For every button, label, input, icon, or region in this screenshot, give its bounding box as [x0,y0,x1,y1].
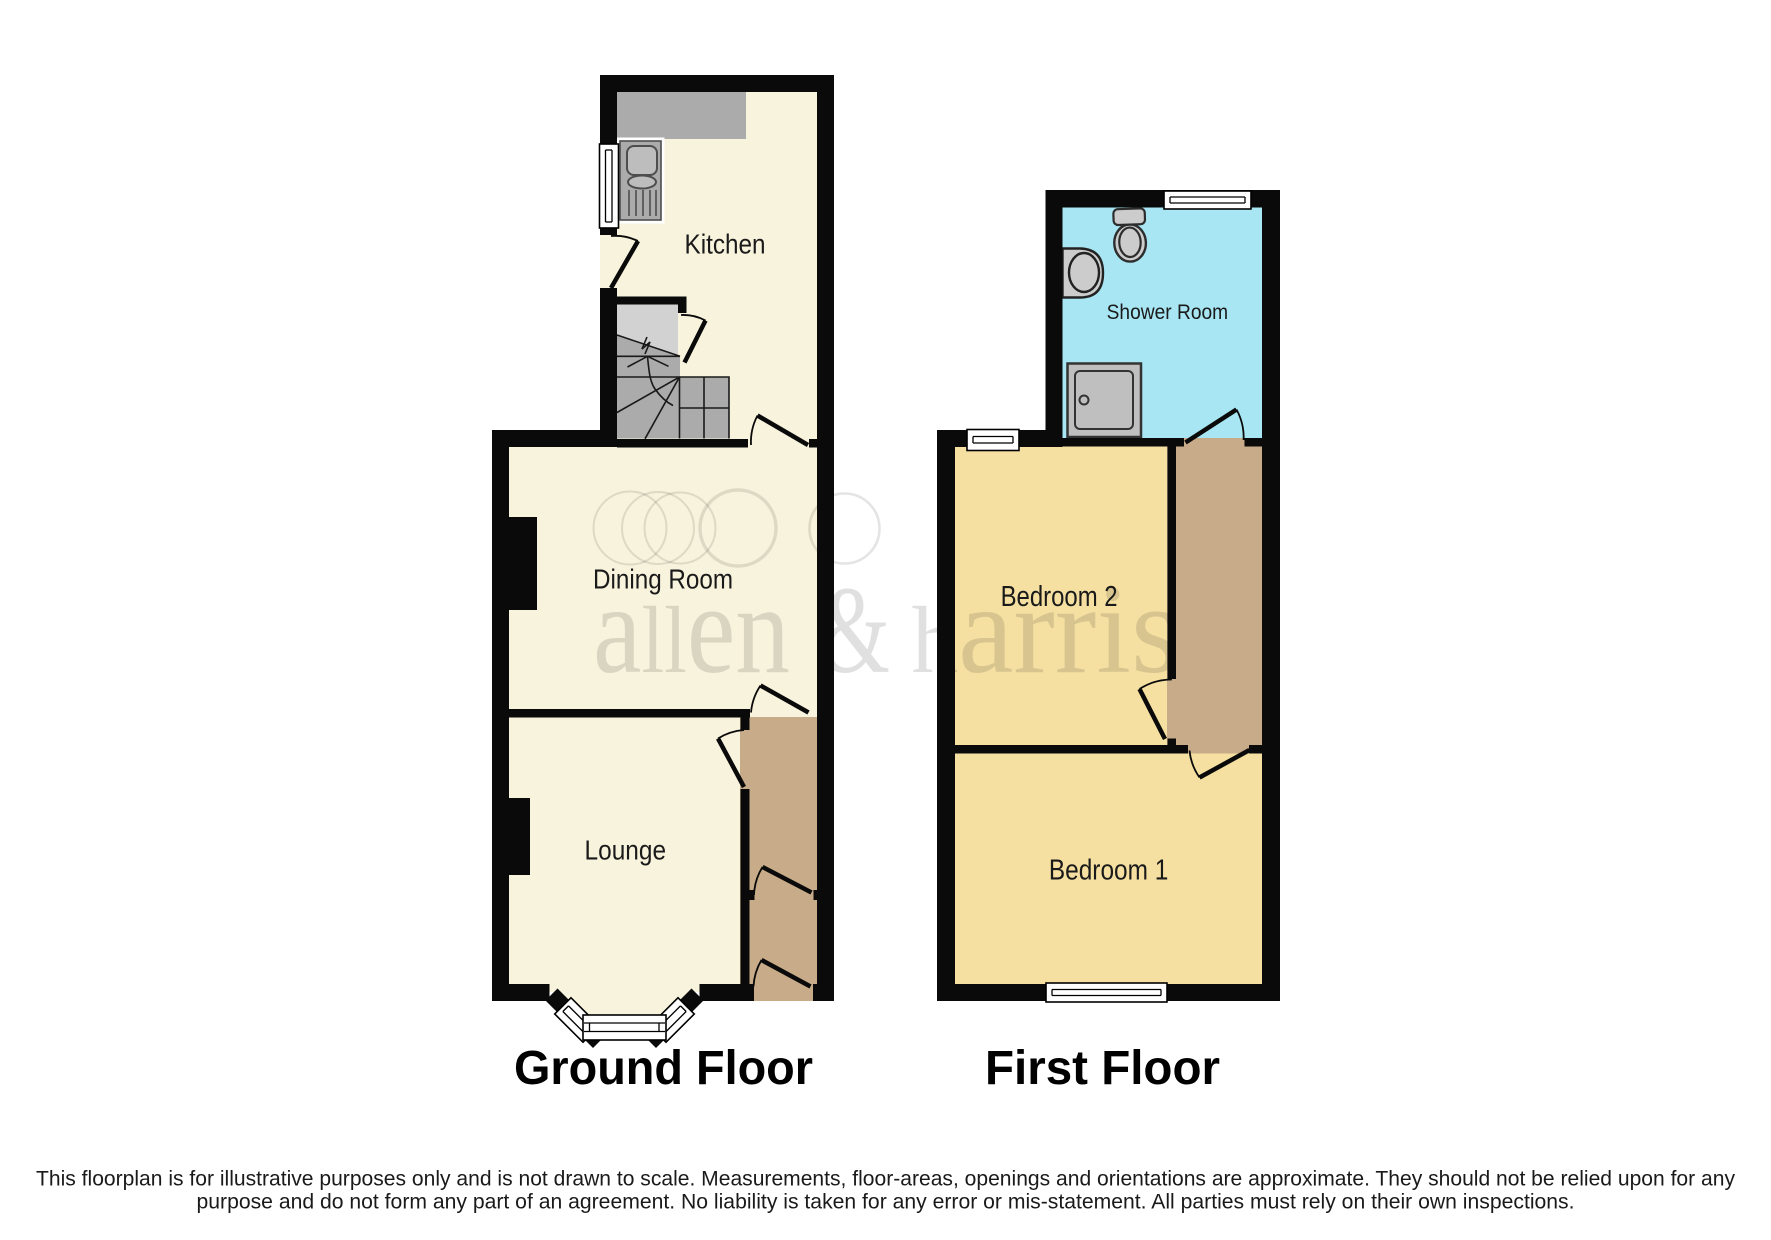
svg-text:Dining Room: Dining Room [593,564,733,595]
svg-text:First Floor: First Floor [985,1041,1220,1095]
svg-text:Bedroom 1: Bedroom 1 [1049,855,1169,887]
svg-text:purpose and do not form any pa: purpose and do not form any part of an a… [197,1191,1575,1214]
svg-text:Lounge: Lounge [585,835,667,866]
svg-text:Kitchen: Kitchen [685,229,766,260]
svg-text:Bedroom 2: Bedroom 2 [1001,581,1118,613]
svg-text:Shower Room: Shower Room [1107,300,1229,324]
svg-text:Ground Floor: Ground Floor [514,1041,813,1095]
svg-text:This floorplan is for illustra: This floorplan is for illustrative purpo… [36,1168,1735,1191]
